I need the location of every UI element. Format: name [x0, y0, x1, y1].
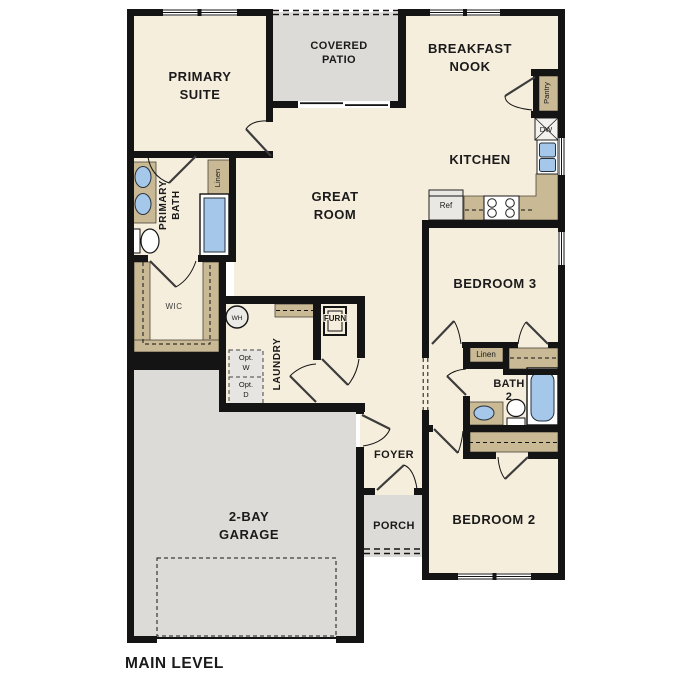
furnace-label: FURN [324, 314, 346, 323]
primary-suite-label2: SUITE [180, 87, 221, 102]
hall-foyer-floor [360, 296, 426, 495]
bath2-sink [474, 406, 494, 420]
primary-bath-label2: BATH [171, 190, 182, 219]
primary-sink [135, 194, 151, 215]
covered-patio-label: COVERED [310, 40, 367, 52]
refrigerator-label: Ref [440, 201, 453, 210]
primary-linen-label: Linen [213, 169, 222, 187]
laundry-shelf [275, 304, 315, 317]
pantry-label: Pantry [542, 82, 551, 104]
bath2-toilet-tank [507, 418, 525, 426]
kitchen-sink-bowl [540, 159, 556, 172]
wic-shelf-bottom [134, 340, 219, 352]
bath2-label2: 2 [506, 391, 513, 403]
opt-dryer-label2: D [243, 390, 249, 399]
covered-patio-label2: PATIO [322, 54, 356, 66]
foyer-label: FOYER [374, 449, 414, 461]
garage-label: 2-BAY [229, 509, 269, 524]
hall-linen-label: Linen [476, 350, 496, 359]
kitchen-label: KITCHEN [449, 152, 510, 167]
bedroom2-label: BEDROOM 2 [452, 512, 535, 527]
primary-shower-pan [204, 198, 225, 252]
primary-suite-label: PRIMARY [169, 69, 232, 84]
opt-washer-label: Opt. [239, 353, 253, 362]
breakfast-nook-label2: NOOK [450, 59, 491, 74]
wic-shelf-right [203, 262, 219, 352]
plan-title: MAIN LEVEL [125, 655, 224, 672]
garage-label2: GARAGE [219, 527, 279, 542]
laundry-label: LAUNDRY [272, 338, 283, 391]
breakfast-nook-label: BREAKFAST [428, 41, 512, 56]
primary-bath-label: PRIMARY [158, 180, 169, 230]
great-room-label2: ROOM [314, 207, 356, 222]
porch-label: PORCH [373, 520, 415, 532]
bath2-label: BATH [493, 378, 524, 390]
primary-sink [135, 167, 151, 188]
bath2-tub-basin [531, 372, 554, 421]
opt-dryer-label: Opt. [239, 380, 253, 389]
great-room-label: GREAT [311, 189, 358, 204]
dishwasher-label: DW [540, 125, 553, 134]
kitchen-sink-bowl [540, 143, 556, 157]
floor-plan-page: PRIMARY SUITE COVERED PATIO BREAKFAST NO… [0, 0, 687, 687]
wic-label: WIC [165, 302, 182, 311]
water-heater-label: WH [232, 315, 243, 322]
bedroom3-label: BEDROOM 3 [453, 276, 536, 291]
primary-toilet-bowl [141, 229, 159, 253]
floor-plan: PRIMARY SUITE COVERED PATIO BREAKFAST NO… [0, 0, 687, 687]
wic-shelf-left [134, 262, 150, 352]
opt-washer-label2: W [242, 363, 250, 372]
